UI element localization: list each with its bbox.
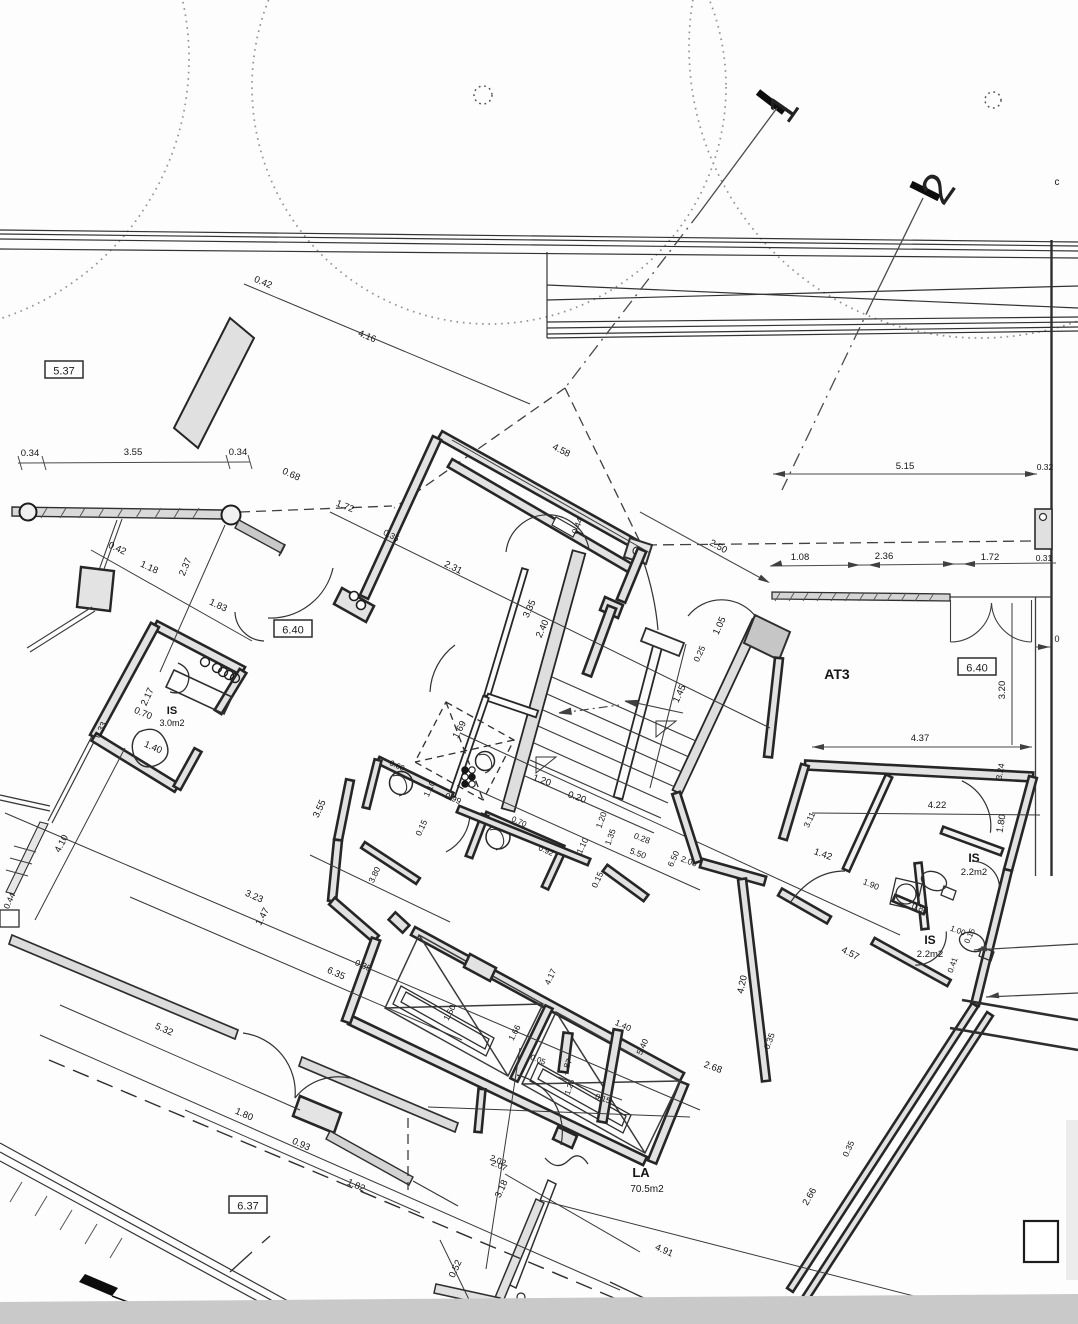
svg-text:2.36: 2.36 (875, 551, 894, 562)
svg-text:3.0m2: 3.0m2 (159, 718, 184, 728)
svg-text:1.08: 1.08 (791, 552, 810, 563)
svg-text:6.37: 6.37 (237, 1201, 258, 1213)
svg-text:6.40: 6.40 (966, 663, 987, 675)
svg-text:IS: IS (924, 933, 935, 947)
svg-text:0.34: 0.34 (21, 448, 40, 459)
svg-text:LA: LA (632, 1165, 650, 1180)
svg-text:70.5m2: 70.5m2 (630, 1184, 664, 1195)
svg-text:1.72: 1.72 (981, 552, 1000, 563)
svg-text:6.40: 6.40 (282, 625, 303, 637)
svg-text:4.22: 4.22 (928, 800, 947, 811)
svg-text:0: 0 (1054, 634, 1059, 644)
svg-text:5.37: 5.37 (53, 366, 74, 378)
svg-text:0.32: 0.32 (1037, 462, 1054, 472)
svg-text:AT3: AT3 (824, 666, 850, 682)
svg-text:IS: IS (968, 851, 979, 865)
svg-text:3.20: 3.20 (997, 681, 1008, 700)
svg-text:IS: IS (167, 705, 177, 717)
svg-text:0.34: 0.34 (229, 447, 248, 458)
svg-text:4.37: 4.37 (911, 733, 930, 744)
svg-text:2.2m2: 2.2m2 (961, 867, 987, 878)
svg-text:c: c (1055, 177, 1060, 188)
svg-text:0.31: 0.31 (1036, 553, 1053, 563)
svg-text:5.15: 5.15 (896, 461, 915, 472)
svg-text:3.55: 3.55 (124, 447, 143, 458)
